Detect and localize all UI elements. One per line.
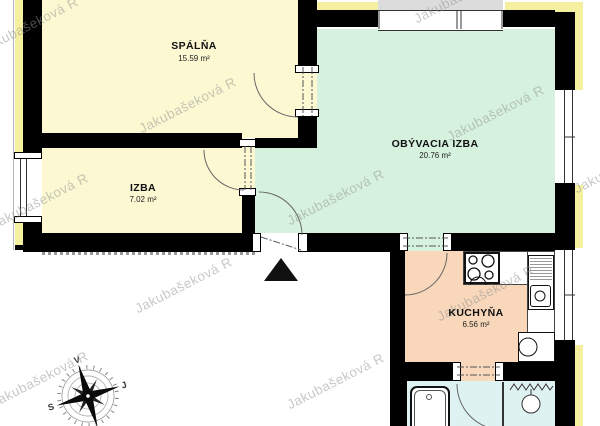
compass-south-label: J <box>120 379 128 390</box>
stove-burner <box>485 271 493 279</box>
door-arc-bedroom <box>254 73 298 117</box>
room-area-izba: 7.02 m² <box>129 195 156 204</box>
stove-burner <box>482 255 494 267</box>
floor-plan: S V J Z Jakubašeková R Jakubašeková R Ja… <box>0 0 600 426</box>
door-arc-bath <box>457 384 503 426</box>
compass-north-label: S <box>47 401 56 412</box>
room-area-obyvacia: 20.76 m² <box>419 151 451 160</box>
entrance-arrow <box>264 258 298 281</box>
room-area-spalna: 15.59 m² <box>178 54 210 63</box>
bath-fixture <box>522 395 540 413</box>
bathtub-drain <box>427 395 432 400</box>
room-area-kuchyna: 6.56 m² <box>462 320 489 329</box>
room-label-izba: IZBA <box>130 182 156 194</box>
room-label-kuchyna: KUCHYŇA <box>448 307 503 319</box>
door-arc-kitchen <box>405 253 447 295</box>
door-arc-izba <box>204 150 244 190</box>
room-label-spalna: SPÁLŇA <box>171 40 217 52</box>
stove-burner <box>469 256 477 264</box>
door-leaf-line <box>261 237 301 250</box>
sink-faucet <box>535 291 545 301</box>
room-label-obyvacia: OBÝVACIA IZBA <box>392 138 479 150</box>
appliance-door <box>519 338 537 356</box>
